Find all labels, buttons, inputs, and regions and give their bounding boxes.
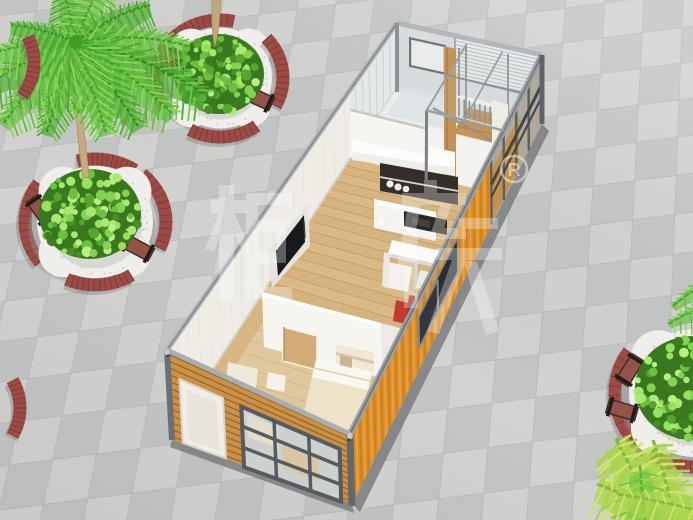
svg-text:R: R — [508, 160, 521, 180]
